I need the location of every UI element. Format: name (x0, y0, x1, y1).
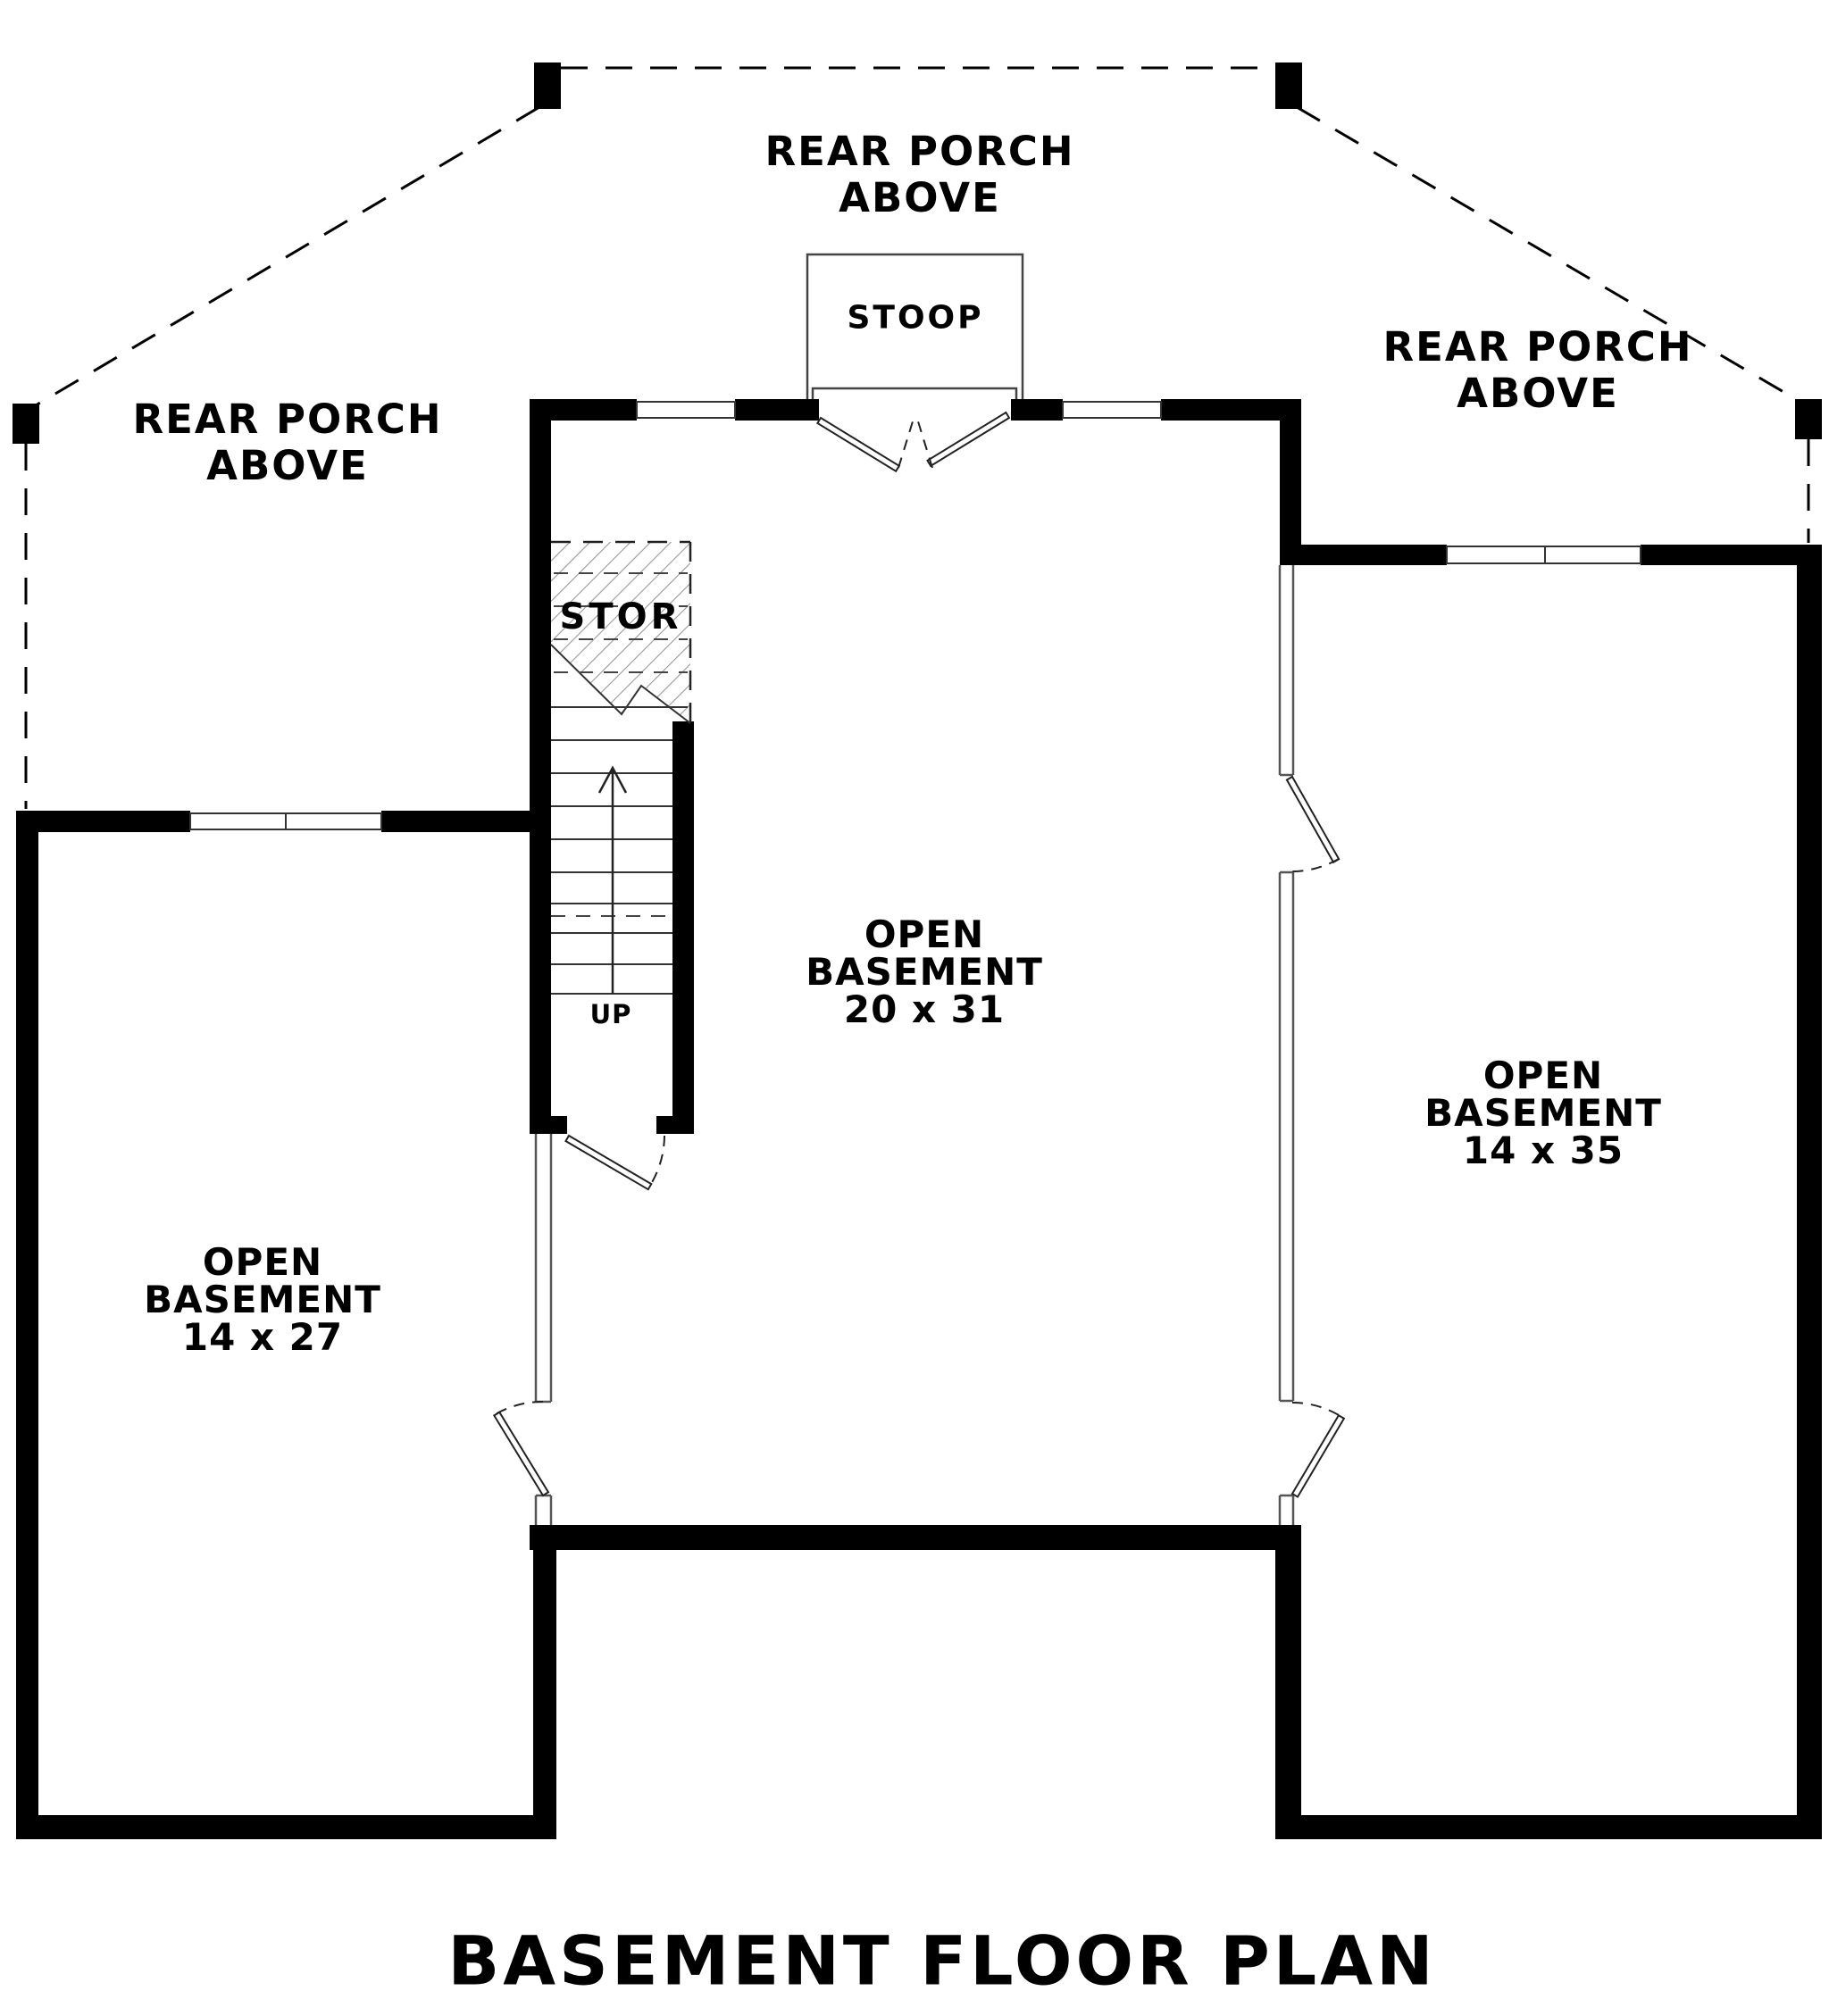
window-main-left (637, 402, 735, 418)
label-rear-porch-right: REAR PORCH ABOVE (1382, 324, 1692, 417)
window-right-room (1447, 546, 1641, 563)
label-rear-porch-top: REAR PORCH ABOVE (764, 129, 1074, 221)
window-main-right (1063, 402, 1161, 418)
page-title: BASEMENT FLOOR PLAN (447, 1921, 1436, 2001)
label-room-open-basement-center: OPEN BASEMENT 20 x 31 (806, 916, 1043, 1029)
label-stoop: STOOP (847, 300, 983, 337)
label-room-open-basement-right: OPEN BASEMENT 14 x 35 (1424, 1057, 1662, 1170)
label-up: UP (590, 999, 632, 1029)
label-rear-porch-left: REAR PORCH ABOVE (132, 396, 442, 489)
label-room-open-basement-left: OPEN BASEMENT 14 x 27 (144, 1244, 381, 1356)
label-storage: STOR (560, 596, 682, 637)
basement-floor-plan: REAR PORCH ABOVE REAR PORCH ABOVE REAR P… (0, 0, 1829, 2016)
